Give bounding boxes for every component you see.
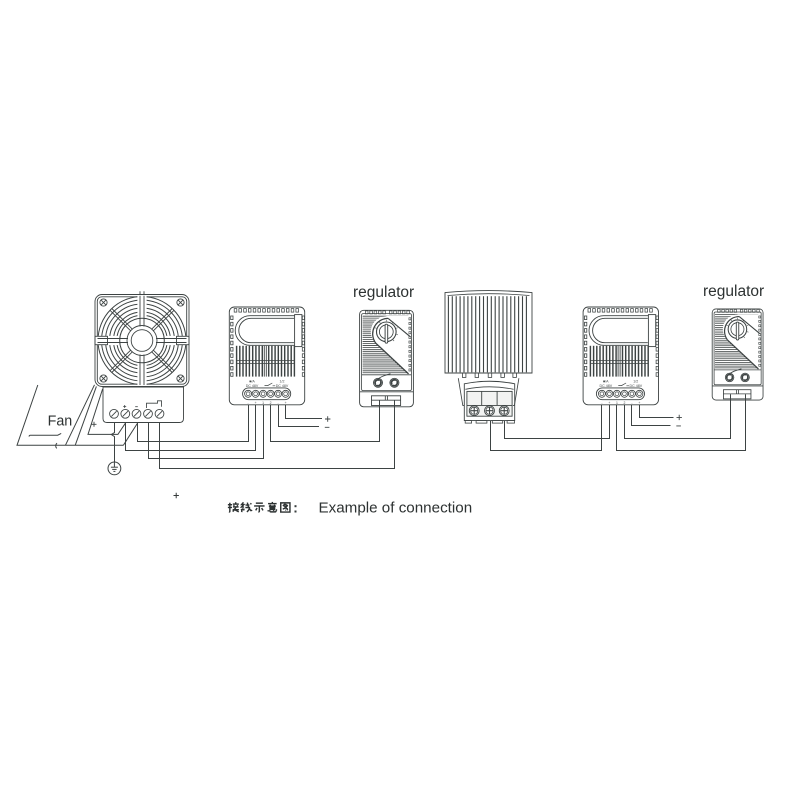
svg-text:Example of connection: Example of connection xyxy=(319,499,473,516)
svg-text:1/2: 1/2 xyxy=(280,380,285,384)
svg-text:■/A: ■/A xyxy=(249,380,255,384)
svg-text:+: + xyxy=(285,401,287,405)
svg-text:1: 1 xyxy=(262,401,264,405)
svg-text:DC 48V: DC 48V xyxy=(276,384,289,388)
svg-text:regulator: regulator xyxy=(703,283,764,300)
svg-text:Fan: Fan xyxy=(48,413,73,429)
svg-text:-: - xyxy=(248,401,249,405)
svg-text:+: + xyxy=(255,401,257,405)
svg-text:DC 48V: DC 48V xyxy=(246,384,259,388)
svg-text:-: - xyxy=(278,401,279,405)
svg-text:regulator: regulator xyxy=(353,284,414,301)
svg-text:2: 2 xyxy=(270,401,272,405)
